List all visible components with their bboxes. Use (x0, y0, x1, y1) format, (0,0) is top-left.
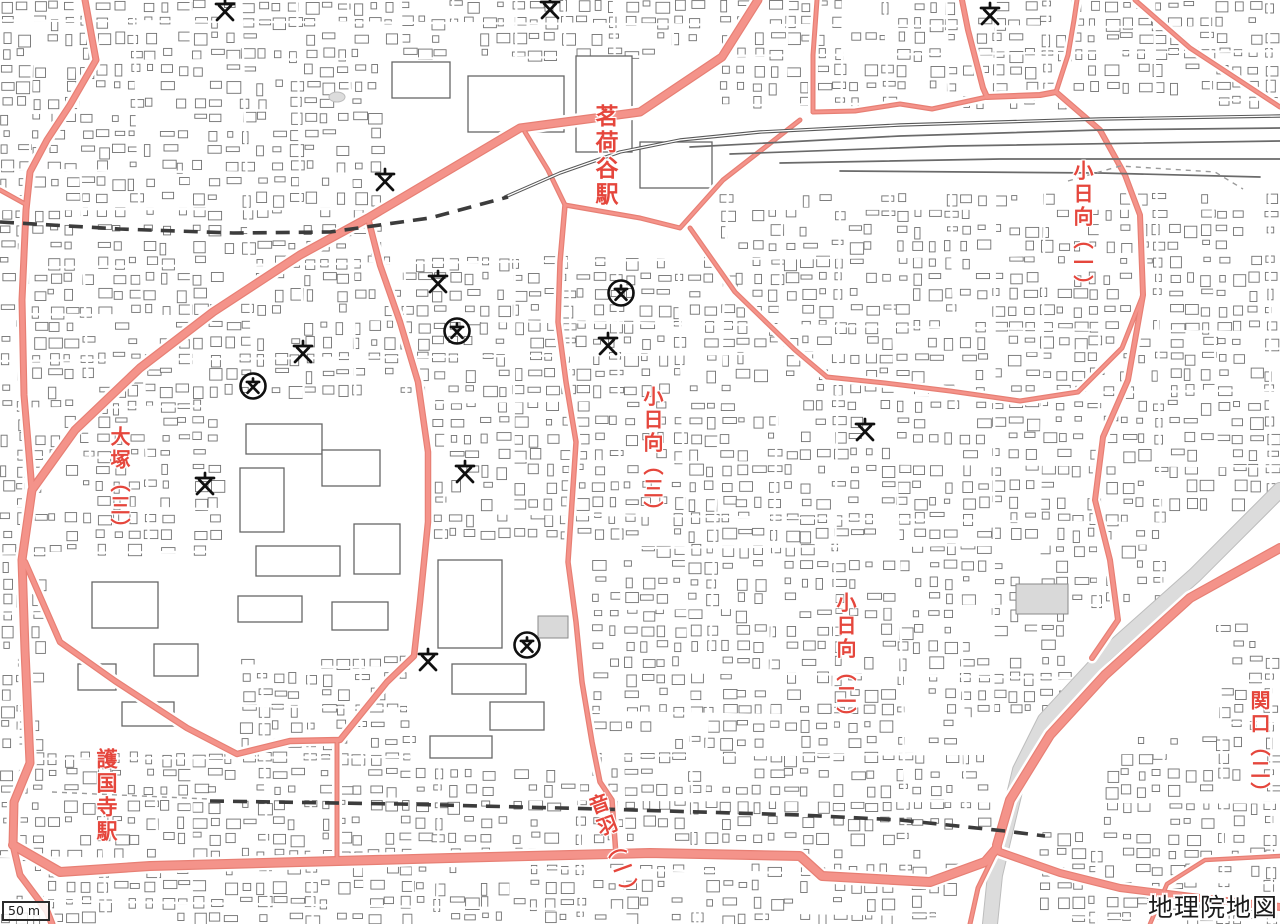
high-school-icon (515, 633, 540, 658)
street-gaps (0, 0, 1280, 924)
school-icon (216, 0, 234, 20)
scale-bar-label: 50 m (8, 903, 40, 918)
school-icon (419, 649, 437, 670)
map-tiles (0, 0, 1280, 924)
scale-bar: 50 m (2, 901, 50, 921)
attribution-link[interactable]: 地理院地図 (1148, 888, 1278, 924)
map-canvas[interactable]: 50 m 地理院地図 茗荷谷駅小日向（一）小日向（三）小日向（二）大塚（三）護国… (0, 0, 1280, 924)
school-icon (541, 0, 559, 18)
